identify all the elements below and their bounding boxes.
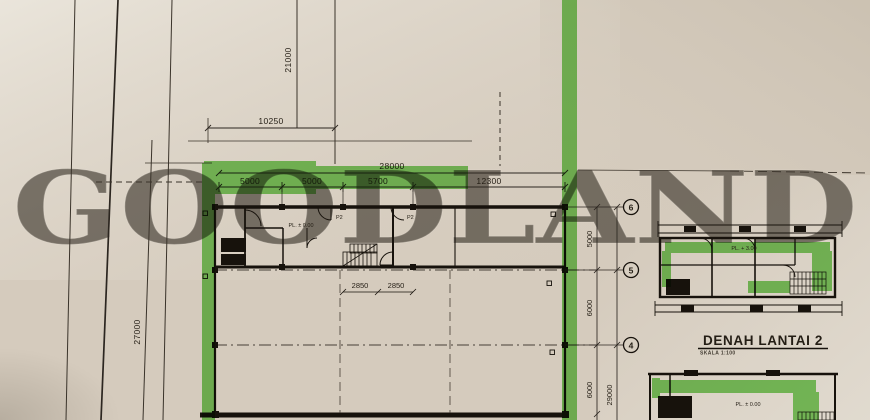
bottom-plan-level-label: PL. ± 0.00 <box>735 402 760 408</box>
door-label-1: P2 <box>336 215 343 221</box>
grid-bubble-5: 5 <box>629 266 634 276</box>
grid-bubble-4: 4 <box>629 341 634 351</box>
dim-right-1: 5000 <box>585 231 594 248</box>
floor-plan-drawing: GOODLAND 10250 21000 27000 <box>0 0 870 420</box>
floor2-level-label: PL. + 3.00 <box>731 246 756 252</box>
dim-bay-4: 12300 <box>476 176 501 186</box>
dim-10250: 10250 <box>258 116 283 126</box>
dim-stair-1: 2850 <box>352 281 369 290</box>
dim-stair-2: 2850 <box>388 281 405 290</box>
dim-27000: 27000 <box>132 319 142 344</box>
dim-21000: 21000 <box>283 47 293 72</box>
dim-right-3: 6000 <box>585 382 594 399</box>
floor2-scale-text: SKALA 1:100 <box>700 351 736 357</box>
door-label-2: P2 <box>407 215 414 221</box>
dim-right-2: 6000 <box>585 300 594 317</box>
grid-bubble-6: 6 <box>629 203 634 213</box>
main-level-label: PL. ± 0.00 <box>288 223 313 229</box>
dim-right-total: 29000 <box>605 385 614 406</box>
floor2-title-text: DENAH LANTAI 2 <box>703 333 823 348</box>
blueprint-photo: GOODLAND 10250 21000 27000 <box>0 0 870 420</box>
